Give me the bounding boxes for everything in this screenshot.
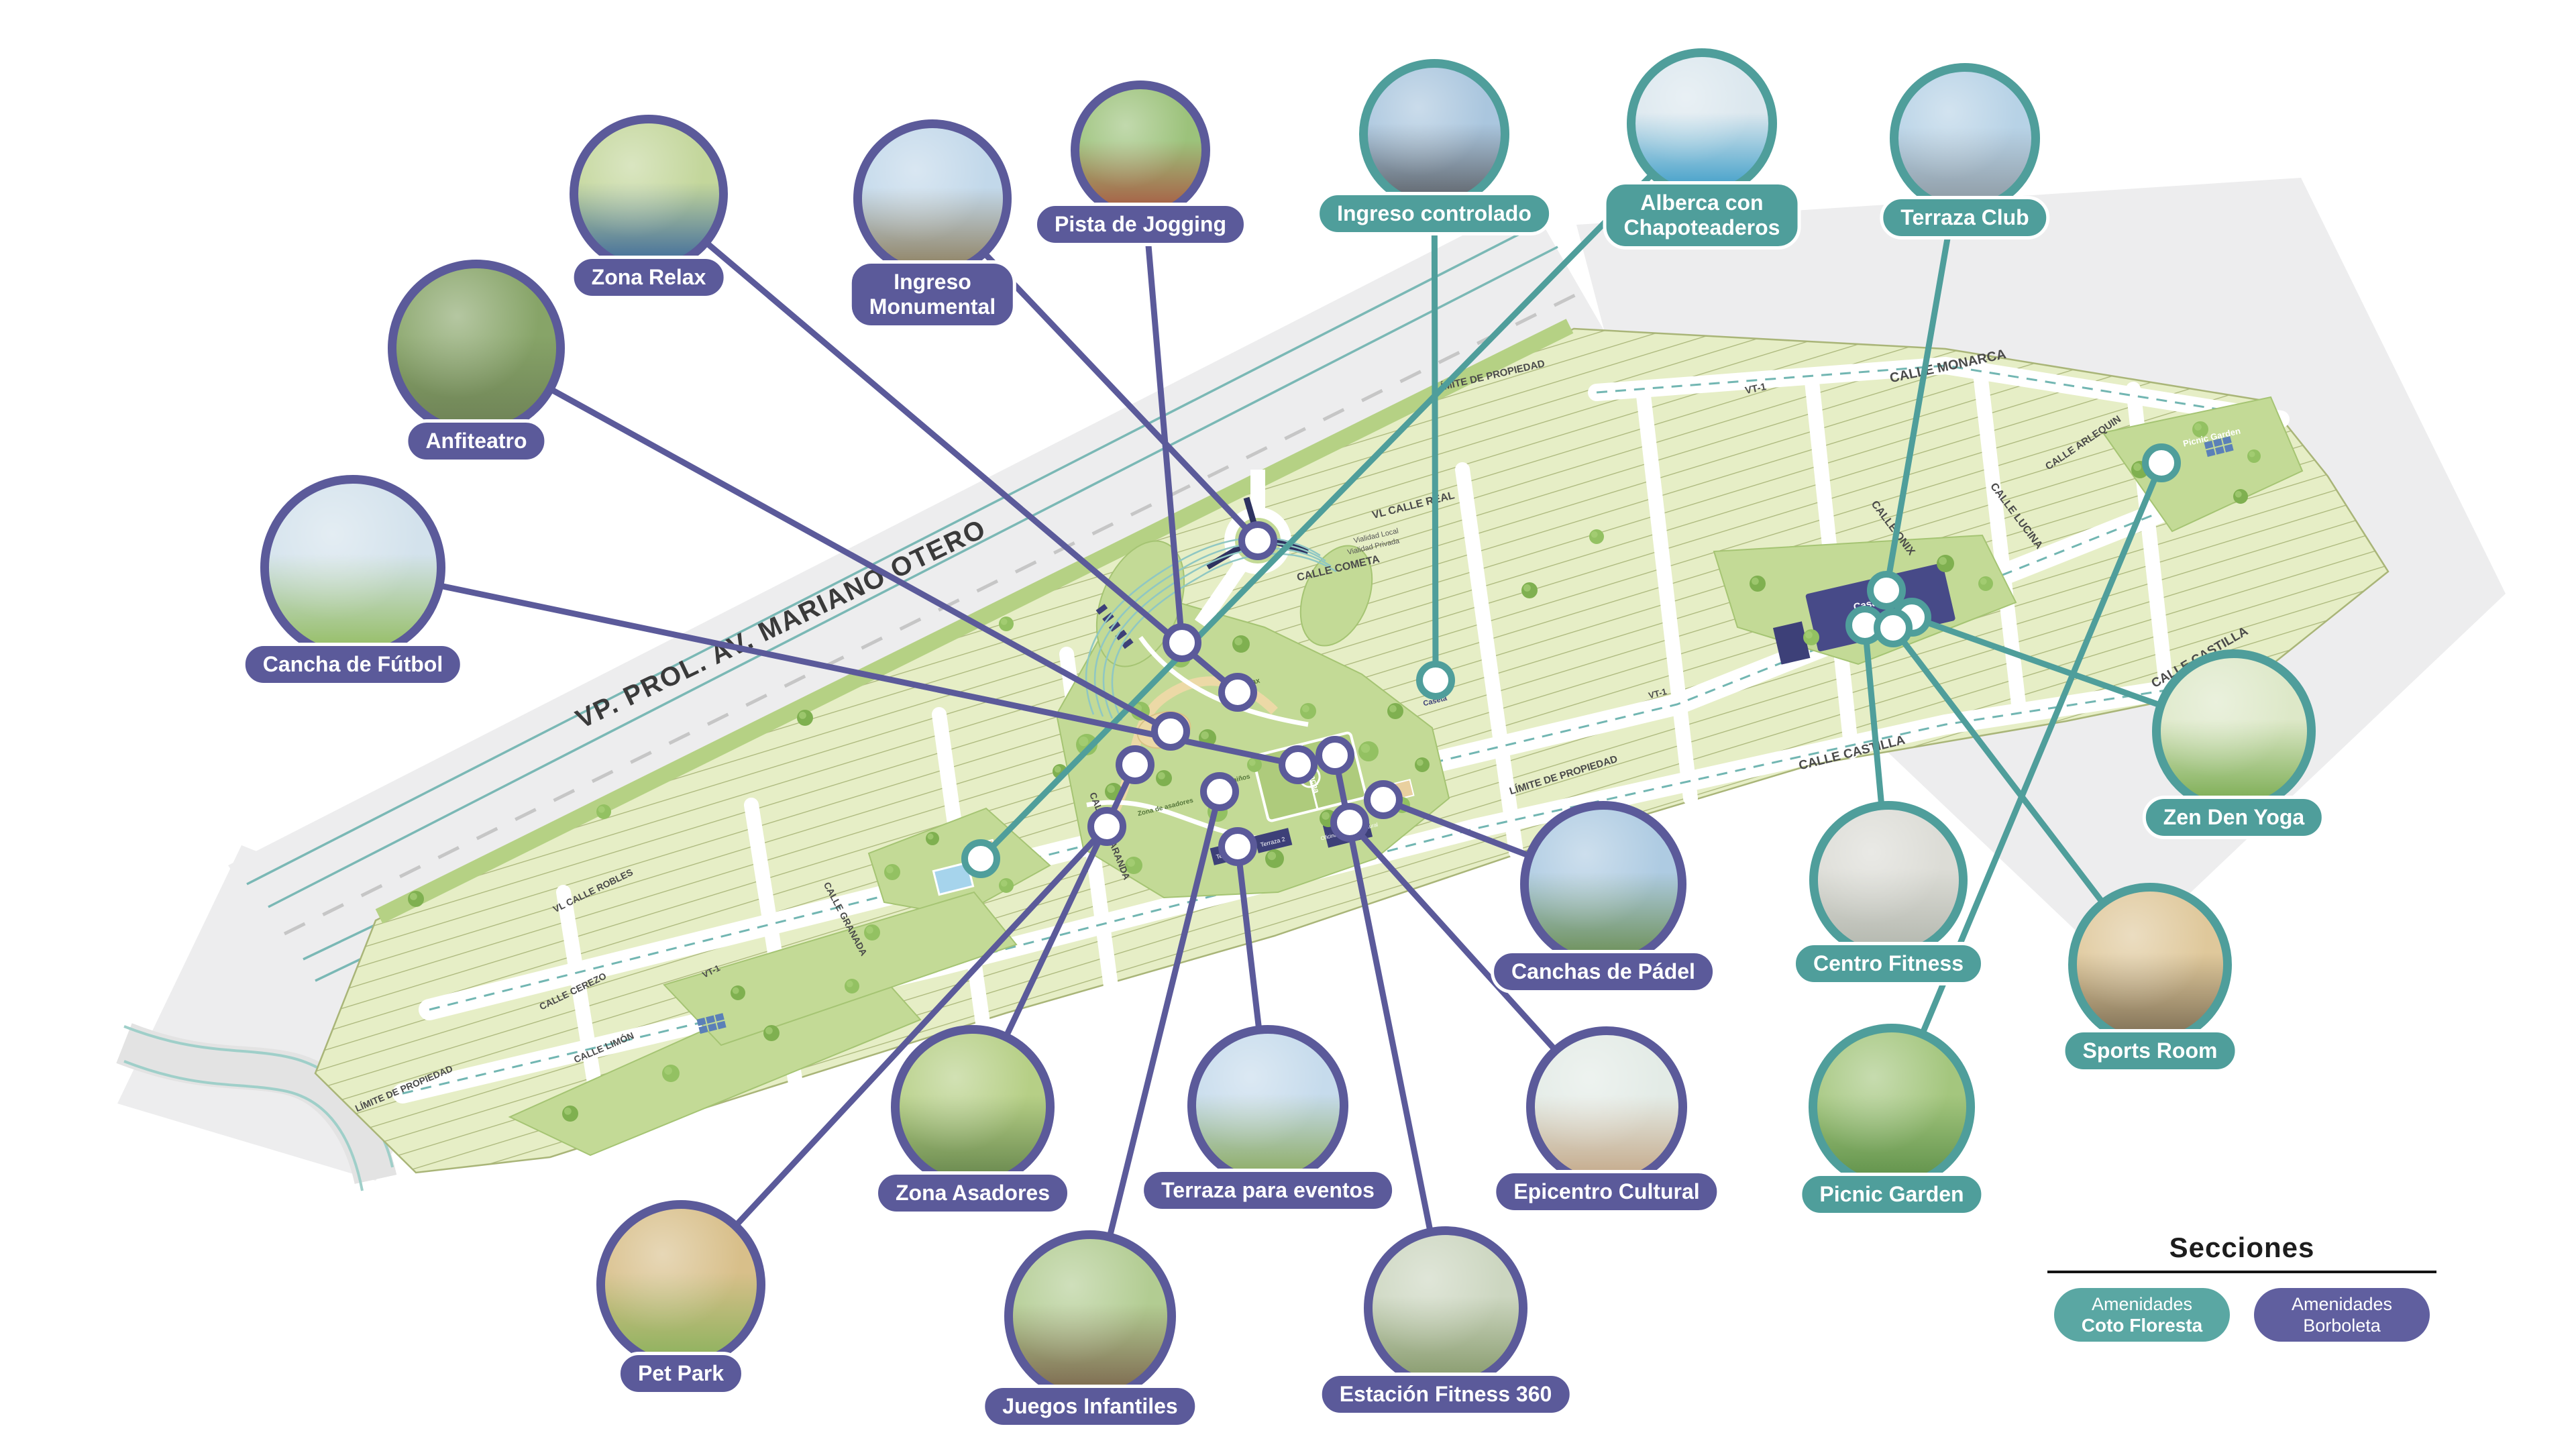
photo-ingreso-monumental — [853, 119, 1012, 278]
photo-centro-fitness — [1809, 801, 1968, 959]
callout-label-anfiteatro: Anfiteatro — [405, 419, 547, 463]
callout-label-pista-jogging: Pista de Jogging — [1034, 203, 1247, 246]
photo-alberca-chapoteaderos — [1627, 48, 1777, 199]
callout-label-canchas-de-padel: Canchas de Pádel — [1491, 950, 1716, 994]
callout-anfiteatro[interactable]: Anfiteatro — [388, 260, 565, 437]
callout-ingreso-monumental[interactable]: IngresoMonumental — [853, 119, 1012, 278]
legend-pill-line2: Borboleta — [2303, 1315, 2381, 1336]
callout-label-terraza-club: Terraza Club — [1880, 196, 2049, 239]
legend: Secciones Amenidades Coto Floresta Ameni… — [2041, 1232, 2443, 1342]
callout-pet-park[interactable]: Pet Park — [596, 1200, 765, 1369]
photo-terraza-para-eventos — [1187, 1025, 1348, 1186]
callout-label-alberca-chapoteaderos: Alberca conChapoteaderos — [1603, 181, 1801, 250]
photo-pet-park — [596, 1200, 765, 1369]
photo-sports-room — [2068, 883, 2232, 1046]
callout-canchas-de-padel[interactable]: Canchas de Pádel — [1520, 801, 1686, 967]
callout-estacion-fitness-360[interactable]: Estación Fitness 360 — [1364, 1226, 1527, 1390]
callout-label-picnic-garden: Picnic Garden — [1799, 1173, 1984, 1216]
photo-canchas-de-padel — [1520, 801, 1686, 967]
legend-pill-borboleta[interactable]: Amenidades Borboleta — [2254, 1288, 2430, 1342]
photo-epicentro-cultural — [1526, 1026, 1687, 1187]
callout-label-juegos-infantiles: Juegos Infantiles — [981, 1385, 1198, 1428]
photo-picnic-garden — [1809, 1024, 1975, 1190]
callout-label-pet-park: Pet Park — [617, 1352, 745, 1395]
callout-label-terraza-para-eventos: Terraza para eventos — [1140, 1169, 1395, 1212]
photo-zona-asadores — [891, 1025, 1055, 1189]
callout-label-sports-room: Sports Room — [2062, 1029, 2239, 1073]
masterplan-infographic: VP. PROL. AV. MARIANO OTEROCALLE MONARCA… — [0, 0, 2576, 1449]
callout-zona-asadores[interactable]: Zona Asadores — [891, 1025, 1055, 1189]
photo-ingreso-controlado — [1359, 59, 1509, 209]
callout-label-zona-asadores: Zona Asadores — [875, 1171, 1071, 1215]
callout-alberca-chapoteaderos[interactable]: Alberca conChapoteaderos — [1627, 48, 1777, 199]
photo-zen-den-yoga — [2152, 649, 2316, 813]
callout-label-zona-relax: Zona Relax — [571, 256, 727, 299]
callout-terraza-club[interactable]: Terraza Club — [1890, 63, 2040, 213]
legend-title: Secciones — [2041, 1232, 2443, 1264]
callout-label-ingreso-controlado: Ingreso controlado — [1316, 192, 1552, 235]
photo-zona-relax — [570, 115, 728, 273]
callout-terraza-para-eventos[interactable]: Terraza para eventos — [1187, 1025, 1348, 1186]
callout-centro-fitness[interactable]: Centro Fitness — [1809, 801, 1968, 959]
legend-rule — [2047, 1271, 2436, 1273]
photo-terraza-club — [1890, 63, 2040, 213]
callout-label-ingreso-monumental: IngresoMonumental — [849, 260, 1016, 329]
legend-pill-line2: Coto Floresta — [2082, 1315, 2202, 1336]
photo-cancha-de-futbol — [260, 475, 445, 660]
photo-pista-jogging — [1071, 80, 1210, 220]
photo-juegos-infantiles — [1004, 1230, 1176, 1402]
callout-epicentro-cultural[interactable]: Epicentro Cultural — [1526, 1026, 1687, 1187]
callout-ingreso-controlado[interactable]: Ingreso controlado — [1359, 59, 1509, 209]
photo-estacion-fitness-360 — [1364, 1226, 1527, 1390]
callout-picnic-garden[interactable]: Picnic Garden — [1809, 1024, 1975, 1190]
legend-pill-line1: Amenidades — [2292, 1293, 2392, 1315]
legend-pill-line1: Amenidades — [2092, 1293, 2192, 1315]
callout-label-zen-den-yoga: Zen Den Yoga — [2143, 796, 2325, 839]
callout-pista-jogging[interactable]: Pista de Jogging — [1071, 80, 1210, 220]
legend-pill-coto-floresta[interactable]: Amenidades Coto Floresta — [2054, 1288, 2230, 1342]
callout-zen-den-yoga[interactable]: Zen Den Yoga — [2152, 649, 2316, 813]
callout-label-estacion-fitness-360: Estación Fitness 360 — [1319, 1373, 1573, 1416]
callout-label-epicentro-cultural: Epicentro Cultural — [1493, 1170, 1720, 1214]
photo-anfiteatro — [388, 260, 565, 437]
callout-cancha-de-futbol[interactable]: Cancha de Fútbol — [260, 475, 445, 660]
callout-sports-room[interactable]: Sports Room — [2068, 883, 2232, 1046]
callout-label-cancha-de-futbol: Cancha de Fútbol — [242, 643, 464, 686]
callout-label-centro-fitness: Centro Fitness — [1792, 942, 1984, 985]
callout-zona-relax[interactable]: Zona Relax — [570, 115, 728, 273]
callout-juegos-infantiles[interactable]: Juegos Infantiles — [1004, 1230, 1176, 1402]
